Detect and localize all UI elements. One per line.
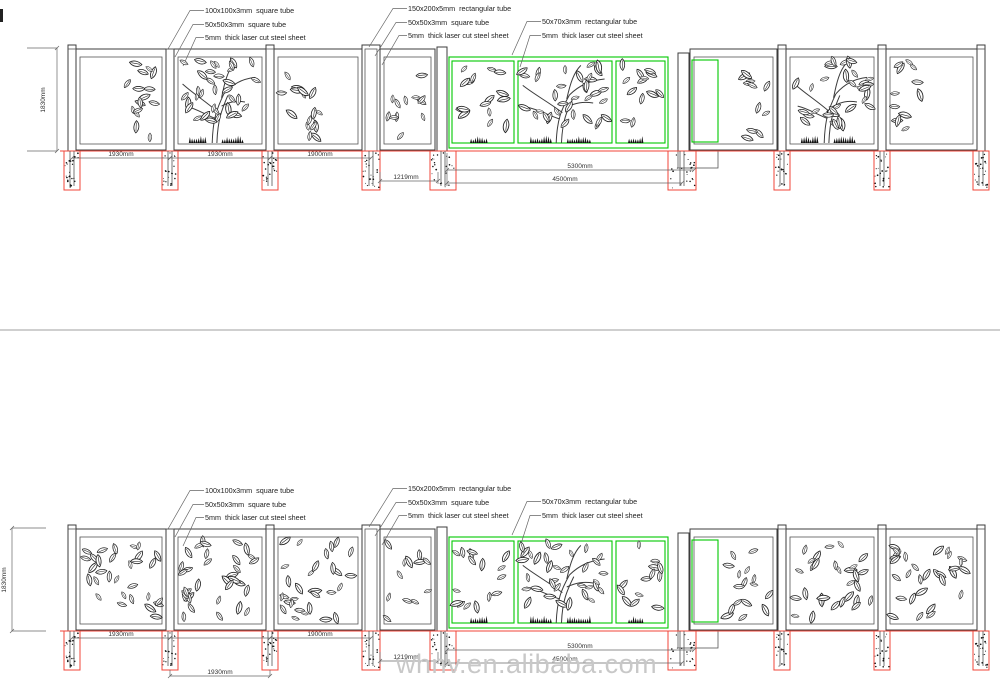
leaf-cutout bbox=[526, 573, 530, 582]
grass-tuft bbox=[801, 136, 819, 143]
leaf-cutout bbox=[416, 72, 428, 79]
leaf-cutout bbox=[543, 111, 550, 123]
grass-tuft bbox=[530, 136, 552, 143]
callout-square-tube-50: 50x50x3mm square tube bbox=[205, 20, 286, 29]
leaf-cutout bbox=[743, 566, 751, 574]
leaf-cutout bbox=[598, 87, 608, 92]
leaf-cutout bbox=[571, 96, 579, 100]
leaf-cutout bbox=[240, 103, 250, 111]
leaf-cutout bbox=[636, 541, 641, 549]
leaf-cutout bbox=[838, 540, 845, 548]
dim-bay3: 1900mm bbox=[307, 631, 332, 638]
grass-tuft bbox=[628, 616, 643, 623]
leaf-cutout bbox=[584, 94, 594, 101]
leaf-cutout bbox=[396, 132, 405, 140]
leaf-cutout bbox=[385, 593, 393, 602]
leaf-cutout bbox=[553, 564, 562, 572]
callout-square-tube-100: 100x100x3mm square tube bbox=[205, 6, 294, 15]
leaf-cutout bbox=[251, 75, 261, 85]
leaf-cutout bbox=[384, 539, 392, 551]
leaf-cutout bbox=[886, 611, 899, 623]
leaf-cutout bbox=[896, 594, 907, 603]
leaf-cutout bbox=[551, 544, 563, 550]
leaf-cutout bbox=[144, 85, 156, 93]
leaf-cutout bbox=[147, 133, 153, 142]
leaf-cutout bbox=[917, 89, 923, 102]
leaf-cutout bbox=[844, 103, 858, 112]
leaf-cutout bbox=[762, 111, 771, 117]
leaf-cutout bbox=[215, 596, 223, 605]
leaf-cutout bbox=[460, 65, 469, 72]
leaf-cutout bbox=[958, 564, 971, 577]
dim-small-panel: 1219mm bbox=[393, 174, 418, 181]
leaf-cutout bbox=[390, 95, 396, 103]
leaf-cutout bbox=[117, 600, 127, 609]
leaf-cutout bbox=[730, 550, 736, 560]
leaf-cutout bbox=[329, 541, 335, 552]
leaf-cutout bbox=[324, 548, 330, 559]
leaf-cutout bbox=[911, 78, 923, 87]
leaf-cutout bbox=[280, 604, 287, 615]
leaf-cutout bbox=[93, 576, 99, 586]
leaf-cutout bbox=[791, 613, 799, 620]
leaf-cutout bbox=[501, 119, 512, 133]
leaf-cutout bbox=[551, 89, 559, 101]
leaf-cutout bbox=[825, 544, 834, 550]
dim-bay1: 1930mm bbox=[108, 631, 133, 638]
leaf-cutout bbox=[132, 85, 145, 93]
leaf-cutout bbox=[478, 558, 487, 571]
leaf-cutout bbox=[801, 545, 810, 555]
leaf-cutout bbox=[212, 85, 218, 95]
leaf-cutout bbox=[232, 537, 243, 547]
leaf-cutout bbox=[216, 611, 223, 622]
leaf-cutout bbox=[319, 615, 332, 623]
callout-steel-sheet-b: 5mm thick laser cut steel sheet bbox=[408, 511, 509, 520]
leaf-cutout bbox=[737, 614, 748, 621]
grass-tuft bbox=[834, 136, 856, 143]
leaf-cutout bbox=[619, 58, 627, 70]
leaf-cutout bbox=[795, 567, 804, 575]
leaf-cutout bbox=[213, 72, 224, 79]
leaf-cutout bbox=[890, 91, 899, 96]
leaf-cutout bbox=[249, 57, 254, 67]
leaf-cutout bbox=[901, 126, 910, 131]
leaf-cutout bbox=[837, 566, 842, 574]
leaf-cutout bbox=[473, 601, 479, 613]
leaf-cutout bbox=[762, 603, 770, 616]
leaf-cutout bbox=[129, 594, 134, 604]
leaf-cutout bbox=[187, 603, 195, 614]
callout-steel-sheet-b: 5mm thick laser cut steel sheet bbox=[408, 31, 509, 40]
leaf-cutout bbox=[857, 553, 869, 563]
leaf-cutout bbox=[284, 71, 291, 81]
callout-rect-tube-70: 50x70x3mm rectangular tube bbox=[542, 497, 637, 506]
leaf-cutout bbox=[234, 601, 245, 615]
dim-bay2: 1930mm bbox=[207, 151, 232, 158]
leaf-cutout bbox=[497, 96, 510, 103]
leaf-cutout bbox=[931, 545, 945, 556]
leaf-cutout bbox=[599, 98, 608, 104]
callout-square-tube-50b: 50x50x3mm square tube bbox=[408, 498, 489, 507]
callout-square-tube-50b: 50x50x3mm square tube bbox=[408, 18, 489, 27]
leaf-cutout bbox=[811, 108, 820, 113]
leaf-cutout bbox=[736, 570, 742, 578]
leaf-cutout bbox=[556, 83, 566, 89]
callout-square-tube-100: 100x100x3mm square tube bbox=[205, 486, 294, 495]
leaf-cutout bbox=[597, 586, 604, 595]
leaf-cutout bbox=[857, 569, 868, 575]
leaf-cutout bbox=[296, 539, 304, 546]
grass-tuft bbox=[628, 136, 643, 143]
leaf-cutout bbox=[892, 572, 901, 582]
leaf-cutout bbox=[345, 572, 357, 580]
leaf-cutout bbox=[416, 550, 422, 561]
section-divider bbox=[0, 329, 1000, 331]
leaf-cutout bbox=[285, 575, 292, 587]
leaf-cutout bbox=[637, 93, 646, 104]
leaf-cutout bbox=[658, 562, 664, 574]
leaf-cutout bbox=[286, 107, 298, 121]
leaf-cutout bbox=[97, 547, 108, 553]
dim-height: 1830mm bbox=[1, 567, 8, 592]
leaf-cutout bbox=[543, 553, 549, 564]
leaf-cutout bbox=[588, 596, 596, 604]
leaf-cutout bbox=[761, 81, 772, 92]
leaf-cutout bbox=[281, 564, 290, 569]
leaf-cutout bbox=[181, 612, 187, 622]
leaf-cutout bbox=[599, 570, 609, 577]
leaf-cutout bbox=[242, 585, 252, 597]
leaf-cutout bbox=[497, 574, 507, 580]
leaf-cutout bbox=[112, 575, 120, 583]
leaf-cutout bbox=[957, 590, 965, 600]
leaf-cutout bbox=[194, 56, 207, 67]
leaf-cutout bbox=[746, 126, 758, 136]
leaf-cutout bbox=[531, 552, 544, 565]
leaf-cutout bbox=[291, 615, 299, 622]
leaf-cutout bbox=[480, 101, 491, 106]
grass-tuft bbox=[567, 616, 591, 623]
leaf-cutout bbox=[808, 83, 815, 92]
panel-art bbox=[80, 536, 971, 624]
leaf-cutout bbox=[626, 87, 638, 96]
leaf-cutout bbox=[580, 562, 590, 573]
leaf-cutout bbox=[741, 132, 754, 143]
callout-steel-sheet-c: 5mm thick laser cut steel sheet bbox=[542, 31, 643, 40]
callout-rect-tube-70: 50x70x3mm rectangular tube bbox=[542, 17, 637, 26]
leaf-cutout bbox=[148, 99, 159, 108]
leaf-cutout bbox=[210, 60, 217, 70]
grass-tuft bbox=[470, 136, 488, 143]
leaf-cutout bbox=[750, 574, 757, 583]
leaf-cutout bbox=[452, 587, 460, 594]
grass-tuft bbox=[189, 136, 207, 143]
leaf-cutout bbox=[494, 68, 506, 77]
leaf-cutout bbox=[394, 98, 400, 108]
leaf-cutout bbox=[232, 554, 241, 566]
leaf-cutout bbox=[629, 117, 637, 128]
leaf-cutout bbox=[203, 558, 213, 566]
leaf-cutout bbox=[915, 612, 925, 621]
leaf-cutout bbox=[460, 547, 466, 557]
leaf-cutout bbox=[576, 70, 584, 83]
leaf-cutout bbox=[402, 596, 413, 605]
leaf-cutout bbox=[179, 58, 188, 67]
leaf-cutout bbox=[622, 77, 632, 84]
leaf-cutout bbox=[522, 597, 534, 609]
leaf-cutout bbox=[86, 574, 92, 586]
dim-bay2-low: 1930mm bbox=[207, 669, 232, 676]
leaf-cutout bbox=[336, 583, 345, 592]
leaf-cutout bbox=[295, 582, 304, 595]
cad-drawing-canvas: 100x100x3mm square tube 50x50x3mm square… bbox=[0, 0, 1000, 686]
leaf-cutout bbox=[820, 77, 829, 81]
dim-bay3: 1900mm bbox=[307, 151, 332, 158]
leaf-cutout bbox=[849, 564, 858, 569]
leaf-cutout bbox=[452, 548, 461, 557]
leaf-cutout bbox=[582, 113, 593, 126]
leaf-cutout bbox=[915, 587, 929, 596]
leaf-cutout bbox=[193, 579, 203, 592]
leaf-cutout bbox=[128, 583, 138, 588]
leaf-cutout bbox=[145, 592, 151, 600]
leaf-cutout bbox=[518, 102, 531, 114]
leaf-cutout bbox=[122, 79, 132, 88]
leaf-cutout bbox=[528, 550, 532, 558]
leaf-cutout bbox=[889, 103, 900, 110]
leaf-cutout bbox=[421, 113, 425, 121]
leaf-cutout bbox=[80, 554, 91, 563]
leaf-cutout bbox=[854, 580, 861, 592]
leaf-cutout bbox=[545, 538, 551, 548]
leaf-cutout bbox=[150, 612, 163, 621]
leaf-cutout bbox=[722, 561, 734, 570]
leaf-cutout bbox=[620, 117, 630, 124]
leaf-cutout bbox=[904, 569, 913, 578]
leaf-cutout bbox=[559, 119, 571, 129]
leaf-cutout bbox=[278, 536, 291, 545]
dim-gate-outer: 5300mm bbox=[567, 163, 592, 170]
callout-square-tube-50: 50x50x3mm square tube bbox=[205, 500, 286, 509]
leaf-cutout bbox=[326, 589, 336, 596]
dim-bay1: 1930mm bbox=[108, 151, 133, 158]
leaf-cutout bbox=[530, 584, 543, 594]
leaf-cutout bbox=[105, 571, 113, 582]
leaf-cutout bbox=[651, 603, 664, 613]
leaf-cutout bbox=[790, 593, 802, 602]
leaf-cutout bbox=[903, 552, 909, 562]
leaf-cutout bbox=[522, 586, 532, 592]
leaf-cutout bbox=[807, 611, 817, 624]
dim-height: 1830mm bbox=[40, 87, 47, 112]
leaf-cutout bbox=[911, 562, 919, 572]
leaf-cutout bbox=[918, 575, 923, 585]
leaf-cutout bbox=[889, 555, 902, 564]
leaf-cutout bbox=[113, 544, 118, 554]
callout-steel-sheet: 5mm thick laser cut steel sheet bbox=[205, 33, 306, 42]
elevation-drawing-top: 100x100x3mm square tube 50x50x3mm square… bbox=[0, 0, 1000, 230]
grass-tuft bbox=[470, 616, 488, 623]
leaf-cutout bbox=[562, 65, 567, 74]
leaf-cutout bbox=[520, 542, 525, 552]
leaf-cutout bbox=[184, 546, 192, 558]
leaf-cutout bbox=[276, 89, 287, 96]
leaf-cutout bbox=[570, 109, 576, 119]
leaf-cutout bbox=[129, 58, 142, 69]
leaf-cutout bbox=[346, 546, 355, 557]
leaf-cutout bbox=[802, 588, 809, 600]
leaf-cutout bbox=[96, 569, 107, 575]
leaf-cutout bbox=[740, 597, 752, 609]
callout-steel-sheet: 5mm thick laser cut steel sheet bbox=[205, 513, 306, 522]
callout-steel-sheet-c: 5mm thick laser cut steel sheet bbox=[542, 511, 643, 520]
grass-tuft bbox=[567, 136, 591, 143]
leaf-cutout bbox=[583, 544, 590, 554]
leaf-cutout bbox=[497, 565, 506, 571]
leaf-cutout bbox=[600, 112, 612, 124]
leaf-cutout bbox=[203, 548, 211, 559]
grass-tuft bbox=[222, 136, 244, 143]
leaf-cutout bbox=[569, 549, 574, 557]
leaf-cutout bbox=[396, 570, 402, 580]
callout-rect-tube-150: 150x200x5mm rectangular tube bbox=[408, 4, 511, 13]
leaf-cutout bbox=[754, 128, 764, 140]
leaf-cutout bbox=[244, 543, 250, 555]
leaf-cutout bbox=[846, 580, 855, 586]
leaf-cutout bbox=[205, 68, 216, 76]
leaf-cutout bbox=[582, 589, 589, 601]
panel-art bbox=[122, 56, 923, 144]
leaf-cutout bbox=[132, 120, 141, 133]
leaf-cutout bbox=[853, 569, 859, 581]
leaf-cutout bbox=[851, 69, 858, 79]
dim-gate-inner: 4500mm bbox=[552, 176, 577, 183]
grass-tuft bbox=[530, 616, 552, 623]
leaf-cutout bbox=[486, 592, 493, 602]
leaf-cutout bbox=[533, 72, 542, 82]
leaf-cutout bbox=[749, 549, 759, 554]
leaf-cutout bbox=[221, 86, 233, 93]
leaf-cutout bbox=[311, 131, 322, 144]
leaf-cutout bbox=[491, 591, 501, 596]
leaf-cutout bbox=[404, 96, 408, 105]
watermark: whnv.en.alibaba.com bbox=[396, 649, 657, 680]
leaf-cutout bbox=[121, 591, 126, 599]
leaf-cutout bbox=[234, 94, 242, 106]
leaf-cutout bbox=[95, 593, 101, 602]
leaf-cutout bbox=[753, 102, 763, 114]
leaf-cutout bbox=[635, 591, 644, 599]
leaf-cutout bbox=[333, 612, 338, 623]
leaf-cutout bbox=[487, 108, 492, 116]
callout-rect-tube-150: 150x200x5mm rectangular tube bbox=[408, 484, 511, 493]
leaf-cutout bbox=[243, 607, 252, 616]
leaf-cutout bbox=[500, 550, 513, 562]
leaf-cutout bbox=[307, 87, 319, 99]
leaf-cutout bbox=[486, 119, 495, 127]
